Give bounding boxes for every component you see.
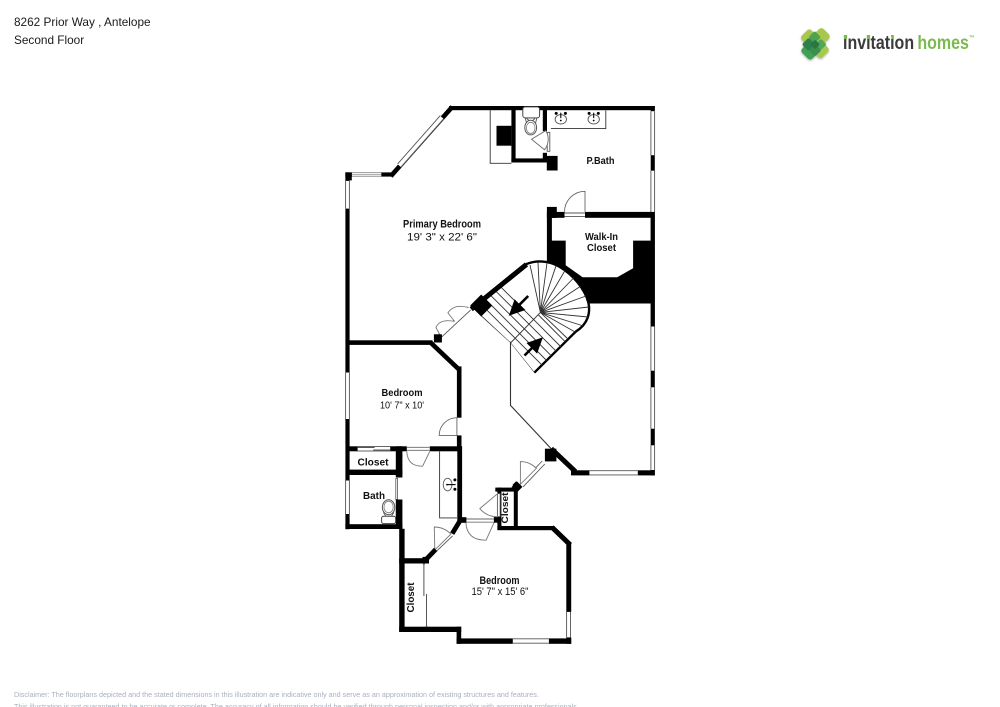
svg-text:Closet: Closet	[358, 456, 389, 468]
svg-text:Primary Bedroom: Primary Bedroom	[403, 219, 481, 231]
svg-text:15' 7" x 15' 6": 15' 7" x 15' 6"	[472, 586, 529, 598]
svg-text:19' 3" x 22' 6": 19' 3" x 22' 6"	[407, 232, 477, 244]
svg-text:Closet: Closet	[500, 492, 511, 524]
svg-text:10' 7" x 10': 10' 7" x 10'	[380, 400, 424, 412]
svg-text:Bedroom: Bedroom	[382, 387, 423, 399]
svg-text:P.Bath: P.Bath	[587, 155, 615, 167]
svg-text:Closet: Closet	[587, 242, 616, 254]
svg-text:Bath: Bath	[363, 490, 385, 502]
svg-text:Closet: Closet	[405, 582, 417, 612]
